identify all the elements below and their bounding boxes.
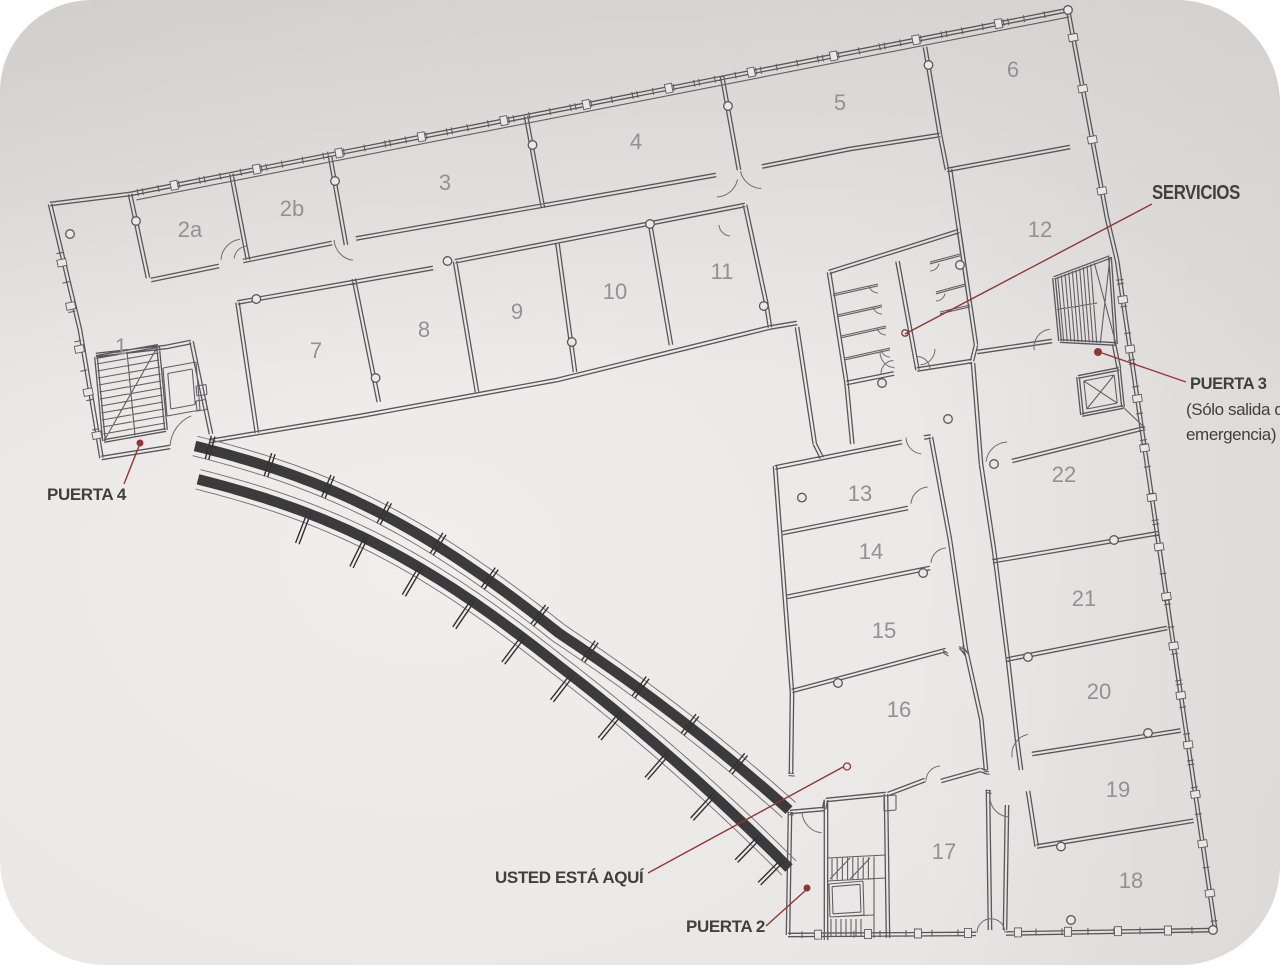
svg-text:11: 11	[711, 259, 734, 284]
svg-text:22: 22	[1052, 462, 1076, 487]
svg-text:20: 20	[1087, 679, 1111, 704]
svg-text:1: 1	[115, 334, 127, 359]
svg-text:4: 4	[630, 129, 642, 154]
svg-text:6: 6	[1007, 57, 1019, 82]
svg-text:5: 5	[834, 90, 846, 115]
svg-text:14: 14	[859, 539, 883, 564]
svg-text:2b: 2b	[280, 196, 304, 221]
svg-text:(Sólo salida de: (Sólo salida de	[1186, 400, 1280, 419]
svg-text:PUERTA 3: PUERTA 3	[1190, 375, 1267, 393]
svg-text:13: 13	[848, 481, 872, 506]
svg-text:USTED ESTÁ AQUÍ: USTED ESTÁ AQUÍ	[495, 868, 645, 887]
svg-text:19: 19	[1106, 777, 1130, 802]
svg-text:SERVICIOS: SERVICIOS	[1152, 182, 1240, 204]
svg-text:10: 10	[603, 279, 627, 304]
svg-text:2a: 2a	[178, 217, 203, 242]
svg-text:PUERTA 2: PUERTA 2	[686, 917, 765, 936]
svg-text:21: 21	[1072, 586, 1096, 611]
svg-text:12: 12	[1028, 217, 1052, 242]
svg-text:8: 8	[418, 317, 430, 342]
svg-text:9: 9	[511, 299, 523, 324]
svg-text:15: 15	[872, 618, 896, 643]
svg-text:emergencia): emergencia)	[1186, 425, 1276, 444]
svg-text:PUERTA 4: PUERTA 4	[47, 485, 127, 504]
svg-text:18: 18	[1119, 868, 1143, 893]
svg-text:3: 3	[439, 170, 451, 195]
svg-text:16: 16	[887, 697, 911, 722]
svg-text:7: 7	[310, 338, 322, 363]
svg-text:17: 17	[932, 839, 956, 864]
